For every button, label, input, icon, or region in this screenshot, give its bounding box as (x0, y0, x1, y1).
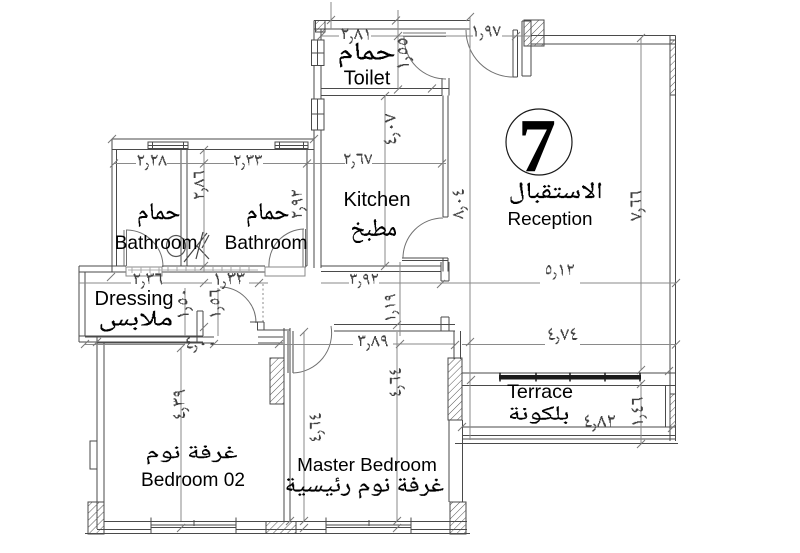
svg-text:7: 7 (518, 104, 556, 188)
svg-text:Dressing: Dressing (95, 288, 174, 310)
svg-text:Bathroom: Bathroom (115, 233, 198, 254)
svg-text:Kitchen: Kitchen (343, 189, 410, 211)
svg-text:Toilet: Toilet (344, 68, 391, 90)
svg-text:Master Bedroom: Master Bedroom (297, 455, 437, 476)
svg-text:Bedroom 02: Bedroom 02 (141, 470, 245, 491)
svg-text:Terrace: Terrace (507, 381, 573, 403)
svg-text:Reception: Reception (507, 209, 592, 230)
svg-text:Bathroom: Bathroom (225, 233, 308, 254)
